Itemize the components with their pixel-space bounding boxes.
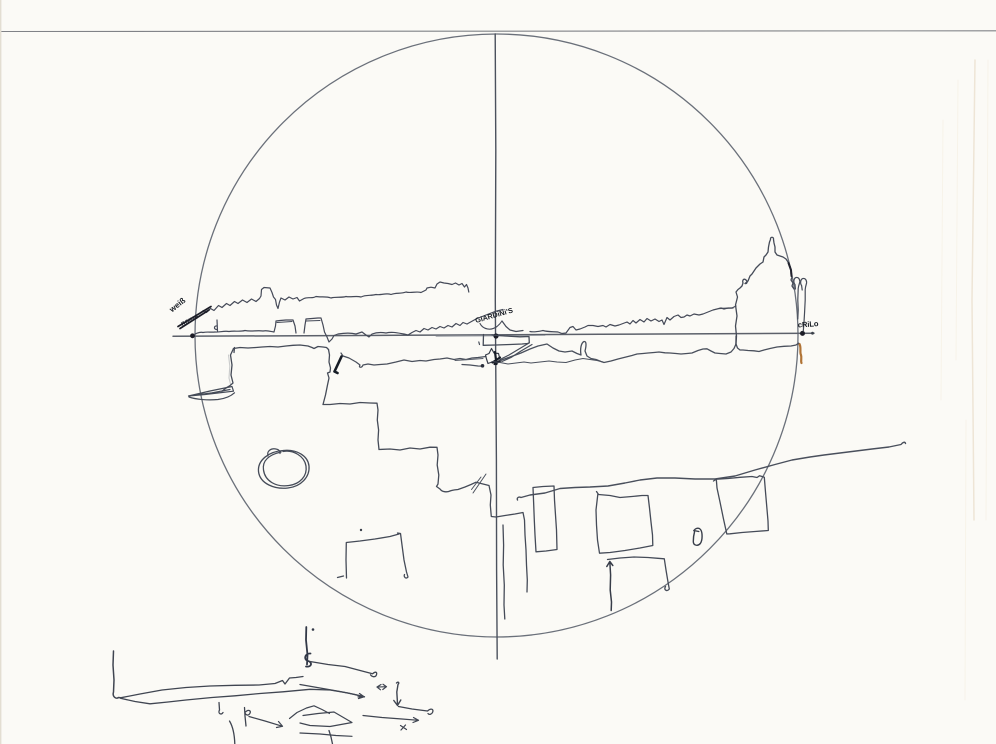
svg-text:cRiLo: cRiLo bbox=[798, 319, 820, 329]
